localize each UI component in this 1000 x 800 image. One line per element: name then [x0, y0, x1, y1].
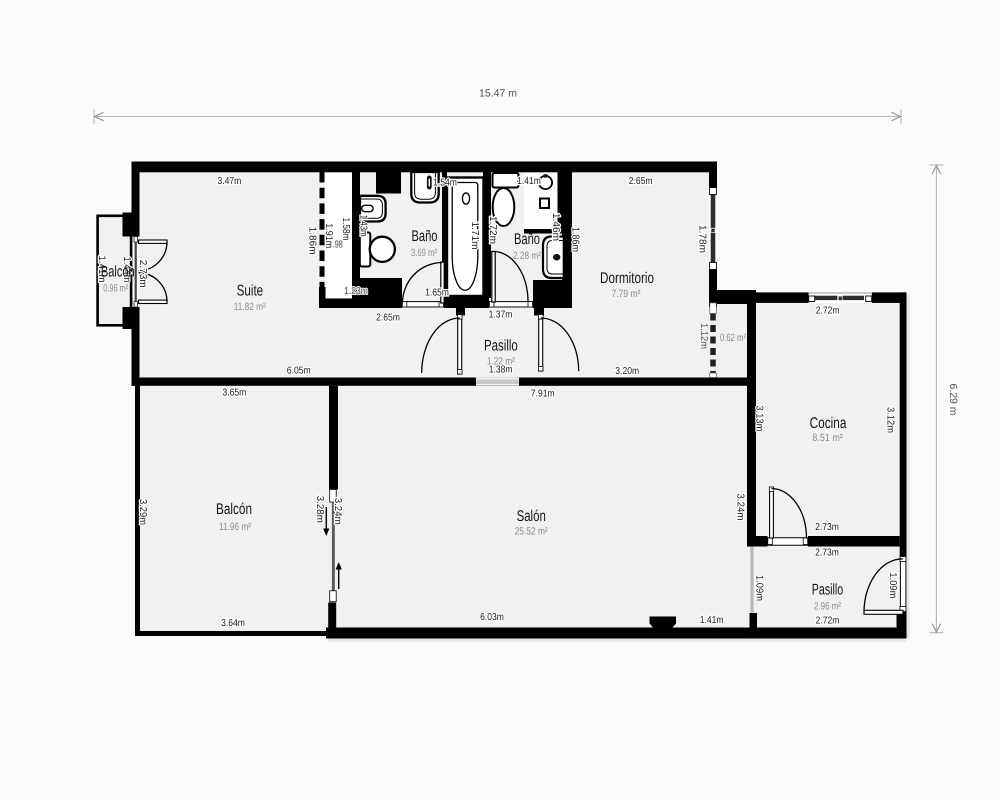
svg-text:3.64m: 3.64m	[221, 618, 245, 629]
svg-text:2.73m: 2.73m	[815, 522, 839, 533]
svg-text:3.24m: 3.24m	[332, 498, 343, 525]
svg-text:1.72m: 1.72m	[487, 216, 498, 244]
svg-text:1.38m: 1.38m	[489, 364, 513, 375]
svg-text:3.20m: 3.20m	[615, 366, 639, 377]
svg-text:2.73m: 2.73m	[137, 260, 148, 288]
svg-text:3.12m: 3.12m	[885, 407, 896, 433]
svg-text:25.52 m²: 25.52 m²	[515, 526, 549, 538]
svg-text:1.09m: 1.09m	[754, 575, 765, 601]
svg-text:1.86m: 1.86m	[306, 227, 317, 255]
svg-text:1.91m: 1.91m	[323, 223, 334, 248]
svg-text:1.41m: 1.41m	[700, 615, 724, 626]
svg-text:1.41m: 1.41m	[517, 176, 541, 187]
svg-text:3.13m: 3.13m	[754, 405, 765, 431]
svg-text:3.47m: 3.47m	[218, 176, 242, 187]
svg-text:7.79 m²: 7.79 m²	[612, 288, 641, 300]
svg-text:6.29 m: 6.29 m	[947, 383, 959, 415]
svg-text:2.28 m²: 2.28 m²	[513, 250, 541, 262]
svg-text:1.58m: 1.58m	[340, 218, 351, 241]
svg-text:3.24m: 3.24m	[734, 494, 745, 521]
svg-text:1.65m: 1.65m	[425, 288, 449, 299]
svg-text:1.37m: 1.37m	[489, 310, 513, 321]
svg-text:3.69 m²: 3.69 m²	[411, 247, 437, 259]
svg-text:Balcón: Balcón	[101, 264, 135, 281]
svg-text:Salón: Salón	[517, 508, 546, 525]
svg-text:1.09m: 1.09m	[887, 572, 898, 598]
svg-text:8.51 m²: 8.51 m²	[812, 432, 843, 444]
svg-text:6.05m: 6.05m	[287, 365, 311, 376]
svg-text:Baño: Baño	[412, 228, 438, 245]
svg-text:Balcón: Balcón	[216, 501, 252, 518]
svg-text:Dormitorio: Dormitorio	[600, 270, 654, 287]
svg-text:2.72m: 2.72m	[816, 305, 840, 316]
svg-text:11.82 m²: 11.82 m²	[234, 301, 266, 313]
svg-text:Pasillo: Pasillo	[484, 338, 518, 355]
svg-text:1.78m: 1.78m	[697, 225, 708, 253]
svg-text:7.91m: 7.91m	[531, 389, 555, 400]
svg-text:11.96 m²: 11.96 m²	[219, 521, 251, 533]
svg-text:1.23m: 1.23m	[344, 286, 368, 297]
svg-text:1.12m: 1.12m	[698, 323, 709, 349]
svg-text:1.86m: 1.86m	[570, 227, 581, 252]
svg-text:2.73m: 2.73m	[815, 548, 839, 559]
svg-text:1.43m: 1.43m	[357, 215, 368, 237]
svg-text:1.54m: 1.54m	[433, 178, 457, 189]
svg-text:1.46m: 1.46m	[550, 213, 561, 241]
svg-text:Cocina: Cocina	[810, 415, 847, 432]
svg-text:6.03m: 6.03m	[480, 612, 504, 623]
svg-text:0.62 m²: 0.62 m²	[720, 332, 746, 344]
svg-text:3.65m: 3.65m	[223, 388, 247, 399]
svg-text:Suite: Suite	[237, 283, 264, 300]
svg-text:15.47 m: 15.47 m	[479, 88, 517, 100]
svg-text:Pasillo: Pasillo	[812, 582, 844, 599]
svg-text:0.96 m²: 0.96 m²	[103, 283, 128, 295]
svg-text:2.96 m²: 2.96 m²	[814, 601, 841, 613]
svg-text:2.65m: 2.65m	[376, 313, 400, 324]
svg-text:2.72m: 2.72m	[816, 616, 840, 627]
svg-text:2.65m: 2.65m	[629, 176, 653, 187]
svg-text:1.71m: 1.71m	[469, 222, 480, 250]
svg-text:Baño: Baño	[514, 231, 540, 248]
svg-text:3.28m: 3.28m	[314, 496, 325, 523]
svg-text:3.29m: 3.29m	[137, 499, 148, 525]
